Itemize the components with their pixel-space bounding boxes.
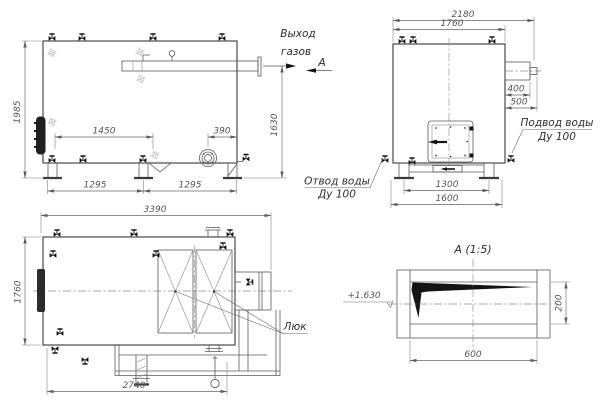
- front-base-frame: [394, 163, 499, 178]
- dim-side-outlet-height: 1630: [243, 66, 287, 178]
- svg-text:400: 400: [507, 85, 524, 95]
- label-gas-outlet-2: газов: [281, 46, 311, 58]
- valve-icon: [82, 357, 89, 364]
- label-water-outlet-2: Ду 100: [317, 189, 356, 201]
- datum-mark-icon: [46, 116, 58, 128]
- water-inlet-callout: Подвод воды Ду 100: [512, 117, 593, 153]
- thermo-well-icon: [169, 51, 175, 57]
- valve-icon: [227, 230, 234, 237]
- label-water-inlet-1: Подвод воды: [521, 117, 594, 129]
- svg-text:1630: 1630: [270, 113, 280, 136]
- valve-icon: [489, 37, 496, 44]
- dim-detail-width: 600: [410, 340, 537, 364]
- valve-icon: [50, 251, 57, 258]
- valve-icon: [399, 37, 406, 44]
- valve-icon: [54, 230, 61, 237]
- weld-seam-wedge: [412, 283, 534, 319]
- hatch-callout: Люк: [177, 292, 308, 334]
- plan-hatch-right: [196, 250, 232, 333]
- plan-view: Люк 3390 1760 2740: [14, 205, 309, 395]
- valve-icon: [219, 34, 226, 41]
- door-handle-icon: [428, 140, 447, 145]
- burner-flange-icon: [200, 150, 217, 167]
- valve-icon: [220, 243, 227, 250]
- datum-mark-icon: [149, 149, 161, 161]
- dim-front-overall-width: 2180: [393, 10, 534, 60]
- valve-icon: [131, 230, 138, 237]
- plan-door-flange: [37, 269, 45, 312]
- valve-icon: [49, 34, 56, 41]
- svg-text:500: 500: [510, 98, 527, 108]
- dim-front-base-span: 1300: [404, 180, 489, 194]
- valve-icon: [80, 156, 87, 163]
- label-water-outlet-1: Отвод воды: [304, 176, 370, 188]
- dim-side-height: 1985: [13, 41, 44, 178]
- valve-icon: [150, 34, 157, 41]
- door-hinge-icon: [470, 127, 474, 131]
- datum-mark-icon: [134, 46, 146, 58]
- svg-text:1760: 1760: [14, 280, 24, 303]
- valve-icon: [140, 156, 147, 163]
- svg-text:1300: 1300: [436, 180, 459, 190]
- label-gas-outlet-1: Выход: [280, 28, 315, 40]
- label-hatch: Люк: [282, 321, 307, 333]
- dim-side-burner-offset: 390: [208, 127, 237, 148]
- svg-text:1985: 1985: [13, 100, 23, 123]
- valve-icon: [49, 156, 56, 163]
- valve-icon: [79, 34, 86, 41]
- valve-icon: [57, 329, 64, 336]
- drain-funnel: [149, 163, 171, 172]
- valve-icon: [52, 346, 59, 353]
- label-water-inlet-2: Ду 100: [537, 131, 576, 143]
- dim-side-valve-span: 1450: [55, 127, 153, 150]
- side-duct: [122, 51, 261, 76]
- detail-view: А (1:5) +1.630 200 600: [343, 243, 570, 364]
- dim-side-leg-span-right: 1295: [144, 180, 237, 194]
- dim-detail-height: 200: [551, 282, 570, 324]
- thermometer-icon: [211, 356, 219, 388]
- svg-text:600: 600: [464, 350, 481, 360]
- bottom-flange-stub: [205, 345, 223, 352]
- valve-icon: [409, 158, 416, 165]
- plan-hatch-left: [158, 250, 193, 333]
- side-view: Выход газов А: [13, 28, 332, 194]
- svg-text:1760: 1760: [441, 19, 464, 29]
- door-hinge-icon: [470, 154, 474, 158]
- datum-mark-icon: [135, 73, 147, 85]
- svg-text:200: 200: [555, 294, 565, 311]
- side-door-flange: [34, 117, 46, 155]
- dim-front-duct-depth: 400: [505, 82, 530, 99]
- datum-mark-icon: [46, 47, 58, 59]
- dim-side-leg-span-left: 1295: [48, 180, 144, 194]
- svg-text:2740: 2740: [123, 381, 146, 391]
- detail-title: А (1:5): [453, 243, 491, 256]
- valve-icon: [410, 37, 417, 44]
- svg-text:1600: 1600: [436, 194, 459, 204]
- valve-icon: [246, 279, 253, 286]
- svg-text:1295: 1295: [84, 181, 107, 191]
- water-outlet-callout: Отвод воды Ду 100: [304, 158, 383, 201]
- svg-text:390: 390: [213, 127, 230, 137]
- view-arrow-letter: А: [317, 56, 326, 69]
- svg-text:1295: 1295: [179, 181, 202, 191]
- label-elevation: +1.630: [347, 291, 381, 301]
- svg-text:3390: 3390: [144, 205, 167, 215]
- valve-icon: [243, 155, 250, 162]
- front-duct-stub: [505, 62, 541, 80]
- top-flange-stub: [205, 228, 221, 238]
- svg-text:1450: 1450: [93, 127, 116, 137]
- front-door: [428, 121, 474, 162]
- water-inlet-valve-icon: [508, 156, 515, 163]
- plan-base-frame: [115, 228, 280, 388]
- elevation-mark: +1.630: [343, 291, 393, 308]
- drawing-canvas: Выход газов А: [0, 0, 600, 400]
- front-view: Отвод воды Ду 100 Подвод воды Ду 100 218…: [304, 10, 593, 208]
